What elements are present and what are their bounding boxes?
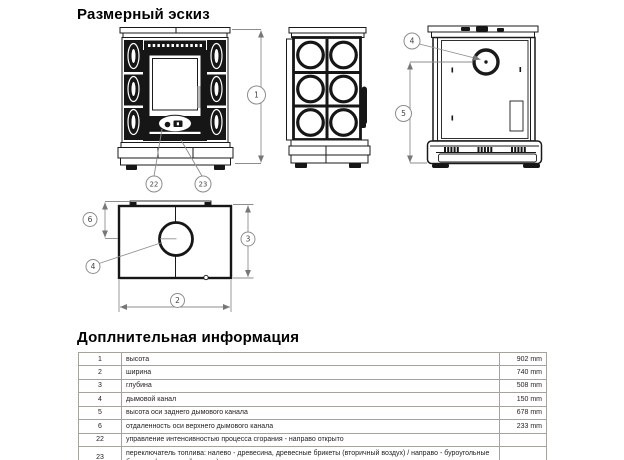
dimension-1-label: 1 xyxy=(254,91,259,100)
row-description-cell: ширина xyxy=(122,366,500,379)
row-description-cell: глубина xyxy=(122,379,500,392)
callout-4-top-label: 4 xyxy=(91,262,96,271)
row-number-cell: 6 xyxy=(79,420,122,433)
row-description-cell: высота xyxy=(122,353,500,366)
door-handle xyxy=(362,87,368,125)
row-number-cell: 3 xyxy=(79,379,122,392)
dimension-1: 1 xyxy=(232,30,266,164)
side-view xyxy=(287,28,371,169)
row-number-cell: 23 xyxy=(79,447,122,460)
row-value-cell xyxy=(500,447,547,460)
top-view: 4 xyxy=(86,201,231,280)
additional-info-table: 1 высота 902 mm 2 ширина 740 mm 3 глубин… xyxy=(78,352,547,460)
table-row: 4 дымовой канал 150 mm xyxy=(79,393,547,406)
table-row: 1 высота 902 mm xyxy=(79,353,547,366)
row-number-cell: 5 xyxy=(79,406,122,419)
row-number-cell: 22 xyxy=(79,433,122,446)
dimension-3-label: 3 xyxy=(246,235,251,244)
row-value-cell: 678 mm xyxy=(500,406,547,419)
front-view xyxy=(118,28,233,171)
table-row: 6 отдаленность оси верхнего дымового кан… xyxy=(79,420,547,433)
row-value-cell xyxy=(500,433,547,446)
callout-23-label: 23 xyxy=(199,180,208,188)
dimension-6-label: 6 xyxy=(88,215,93,224)
table-row: 22 управление интенсивностью процесса сг… xyxy=(79,433,547,446)
row-value-cell: 508 mm xyxy=(500,379,547,392)
row-description-cell: дымовой канал xyxy=(122,393,500,406)
rear-view xyxy=(428,26,542,168)
row-number-cell: 1 xyxy=(79,353,122,366)
junction-box xyxy=(510,101,523,131)
row-value-cell: 233 mm xyxy=(500,420,547,433)
door-latch xyxy=(198,86,201,108)
row-description-cell: управление интенсивностью процесса сгора… xyxy=(122,433,500,446)
callout-4-label: 4 xyxy=(410,37,415,46)
row-description-cell: переключатель топлива: налево - древесин… xyxy=(122,447,500,460)
table-row: 23 переключатель топлива: налево - древе… xyxy=(79,447,547,460)
row-value-cell: 902 mm xyxy=(500,353,547,366)
callout-22-label: 22 xyxy=(150,180,159,188)
manual-page: Размерный эскиз xyxy=(0,0,624,460)
table-row: 5 высота оси заднего дымового канала 678… xyxy=(79,406,547,419)
table-row: 3 глубина 508 mm xyxy=(79,379,547,392)
table-row: 2 ширина 740 mm xyxy=(79,366,547,379)
row-number-cell: 4 xyxy=(79,393,122,406)
row-description-cell: отдаленность оси верхнего дымового канал… xyxy=(122,420,500,433)
row-value-cell: 150 mm xyxy=(500,393,547,406)
dimension-2-label: 2 xyxy=(175,296,180,305)
dimension-3: 3 xyxy=(233,205,255,279)
row-value-cell: 740 mm xyxy=(500,366,547,379)
air-control-knob xyxy=(165,122,171,128)
row-description-cell: высота оси заднего дымового канала xyxy=(122,406,500,419)
dimensional-sketch: 22 23 1 xyxy=(0,0,624,330)
row-number-cell: 2 xyxy=(79,366,122,379)
dimension-2: 2 xyxy=(119,280,231,312)
section-title: Доплнительная информация xyxy=(77,329,299,346)
dimension-5-label: 5 xyxy=(401,109,406,118)
